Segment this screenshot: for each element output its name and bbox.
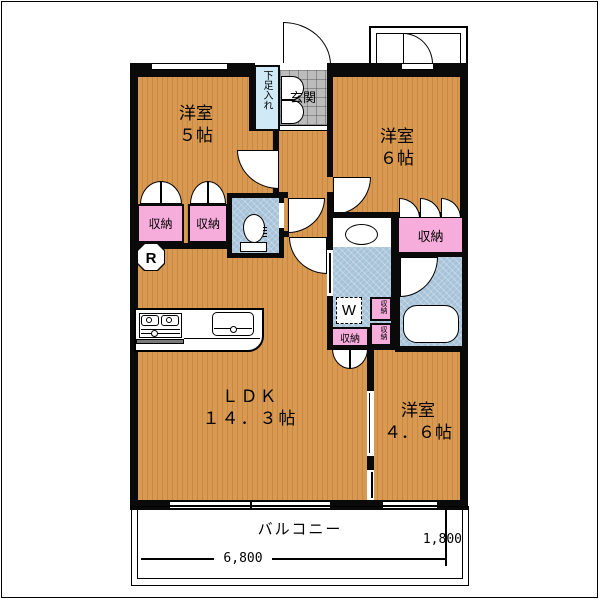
closet-room5-left: 収納 [137, 204, 184, 243]
stove-knob [151, 330, 158, 337]
closet-small-lower-label: 収納 [378, 326, 388, 346]
room46-label: 洋室 ４．６帖 [372, 400, 464, 444]
stove-burner-ring [146, 317, 152, 323]
kitchen-base-bar [136, 339, 184, 344]
room46-size: ４．６帖 [372, 422, 464, 444]
stove-grill-line [141, 329, 180, 330]
counter-edge-line [184, 338, 260, 339]
room6-label: 洋室 ６帖 [357, 126, 437, 170]
closet-small-upper-label: 収納 [378, 300, 388, 320]
sliding-door-leaf [369, 393, 371, 453]
shoe-cabinet: 下足入れ [254, 65, 280, 131]
wall [327, 63, 333, 177]
wall [279, 192, 288, 198]
entrance-step [280, 125, 327, 131]
refrigerator-label: R [137, 249, 165, 269]
sink-drain [230, 326, 237, 333]
wall [367, 347, 374, 390]
shoe-cabinet-label: 下足入れ [260, 70, 274, 128]
closet-room6-label: 収納 [399, 218, 462, 252]
balcony-label: バルコニー [250, 520, 350, 540]
sliding-door-leaf [371, 472, 373, 498]
wall [273, 131, 279, 152]
stove-grill-line [141, 333, 180, 334]
room6-size: ６帖 [357, 148, 437, 170]
washer-space: W [336, 297, 362, 324]
bathtub [403, 305, 459, 343]
dimension-main-width: 6,800 [214, 551, 272, 568]
washroom-door-leaf [329, 253, 331, 293]
wall [367, 456, 374, 470]
room5-name: 洋室 [156, 103, 236, 125]
ldk-name: ＬＤＫ [185, 386, 315, 408]
wall-left [130, 63, 138, 510]
closet-small-upper: 収納 [370, 297, 392, 321]
dimension-right-width: 1,800 [412, 532, 462, 549]
closet-ldk: 収納 [331, 327, 369, 347]
dimension-line-horizontal [141, 558, 445, 560]
closet-room6: 収納 [399, 218, 462, 252]
porch-door-opening [402, 63, 433, 70]
toilet-door-opening [279, 203, 284, 228]
toilet-flush-handle [263, 226, 267, 237]
stove-burner-ring [166, 317, 172, 323]
window-room5 [152, 63, 227, 70]
room46-name: 洋室 [372, 400, 464, 422]
toilet-pedestal [240, 242, 267, 252]
entrance-label: 玄関 [283, 90, 323, 107]
washbasin [345, 224, 378, 245]
closet-room5-right: 収納 [188, 204, 228, 243]
ldk-label: ＬＤＫ １４．３帖 [185, 386, 315, 430]
closet-small-lower: 収納 [370, 323, 392, 346]
room6-name: 洋室 [357, 126, 437, 148]
floor-plan: 下足入れ 玄関 洋室 ５帖 収納 収納 R 洋室 ６帖 [0, 0, 600, 600]
room5-size: ５帖 [156, 125, 236, 147]
ldk-size: １４．３帖 [185, 408, 315, 430]
room5-label: 洋室 ５帖 [156, 103, 236, 147]
